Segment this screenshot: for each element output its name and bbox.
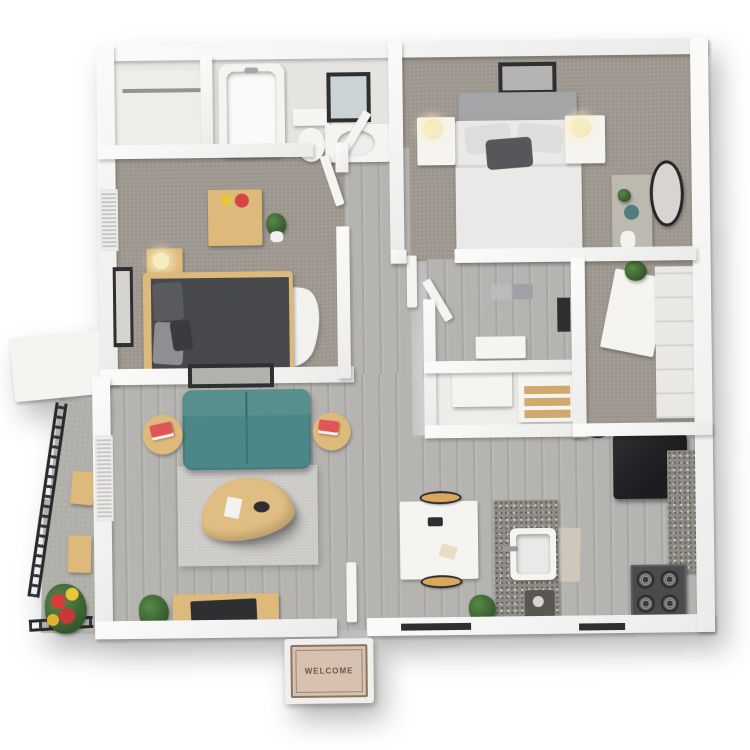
book-right: [318, 419, 340, 435]
floor-entry-closet: [114, 58, 207, 155]
master-dresser-plant-2: [624, 205, 639, 220]
burner-2: [660, 570, 678, 588]
apartment-3d-floor-plan: [0, 0, 750, 750]
table-phone: [428, 517, 443, 526]
wall-bedroom2-east-lower: [336, 226, 351, 378]
bath2-wall-art: [557, 298, 570, 332]
wall-hall-stub: [390, 250, 406, 264]
living-wall-art-print: [192, 367, 270, 384]
floor-plan-canvas: WELCOME: [0, 0, 750, 750]
burner-1: [636, 571, 654, 589]
b2-plant-pot: [270, 231, 283, 242]
kitchen-faucet: [502, 546, 518, 551]
master-pillow-accent: [485, 137, 533, 171]
welcome-mat-text: WELCOME: [305, 666, 354, 676]
master-door: [407, 255, 418, 307]
bath2-towel-2: [513, 284, 533, 299]
balcony-chair-1: [70, 471, 96, 506]
master-round-mirror: [649, 160, 684, 226]
welcome-mat: WELCOME: [284, 638, 374, 704]
b2-lamp: [152, 253, 169, 270]
wall-walkin-west: [571, 257, 587, 437]
balcony-chair-2: [68, 535, 92, 573]
flower-yellow-2: [47, 614, 59, 626]
center-cabinet: [452, 370, 512, 407]
b2-wall-art-print: [116, 271, 131, 343]
toilet-tank: [293, 109, 329, 126]
b2-window: [102, 191, 117, 249]
bathtub-basin: [226, 71, 277, 150]
walkin-shelving: [655, 266, 695, 418]
bath-faucet: [244, 67, 258, 73]
closet-shelf: [118, 60, 204, 71]
island-cup: [533, 596, 544, 607]
master-lamp-right: [571, 117, 589, 135]
wall-bedroom2-east-upper: [335, 142, 348, 172]
apartment-unit: WELCOME: [0, 0, 750, 750]
wall-walkin-south: [573, 422, 713, 437]
dining-table: [400, 501, 479, 580]
bath2-vanity: [476, 336, 526, 359]
flower-red-1: [51, 594, 66, 609]
wall-master-west: [388, 42, 405, 260]
wall-bath-south: [97, 143, 313, 160]
burner-4: [661, 594, 679, 612]
master-lamp-left: [423, 119, 441, 137]
sofa-back-split: [245, 392, 247, 418]
master-dresser-plant-1: [618, 189, 631, 202]
master-wall-art-print: [502, 66, 552, 91]
wall-bottom-left: [95, 618, 337, 639]
patio-door: [97, 437, 112, 519]
entry-window-slit-2: [579, 623, 625, 631]
wall-center-south: [425, 423, 581, 438]
b2-pillow-3: [169, 319, 193, 352]
walkin-plant: [625, 261, 647, 281]
kitchen-sink-basin: [516, 534, 550, 574]
entry-door: [346, 562, 357, 622]
kitchen-counter: [667, 450, 698, 572]
burner-3: [637, 595, 655, 613]
linen-drawer-1: [524, 386, 570, 395]
flower-red-2: [59, 608, 75, 624]
entry-window-slit-1: [401, 623, 471, 631]
linen-drawer-3: [524, 410, 570, 419]
linen-drawer-2: [524, 398, 570, 407]
wall-closet-divider: [200, 56, 213, 152]
welcome-mat-border: WELCOME: [290, 644, 368, 698]
bath2-towel-1: [491, 284, 511, 299]
b2-pillow-1: [152, 282, 184, 322]
flower-yellow-1: [66, 588, 79, 601]
wall-bath2-south: [424, 359, 580, 373]
b2-plate-yellow: [221, 195, 232, 206]
b2-plate-red: [235, 194, 249, 208]
